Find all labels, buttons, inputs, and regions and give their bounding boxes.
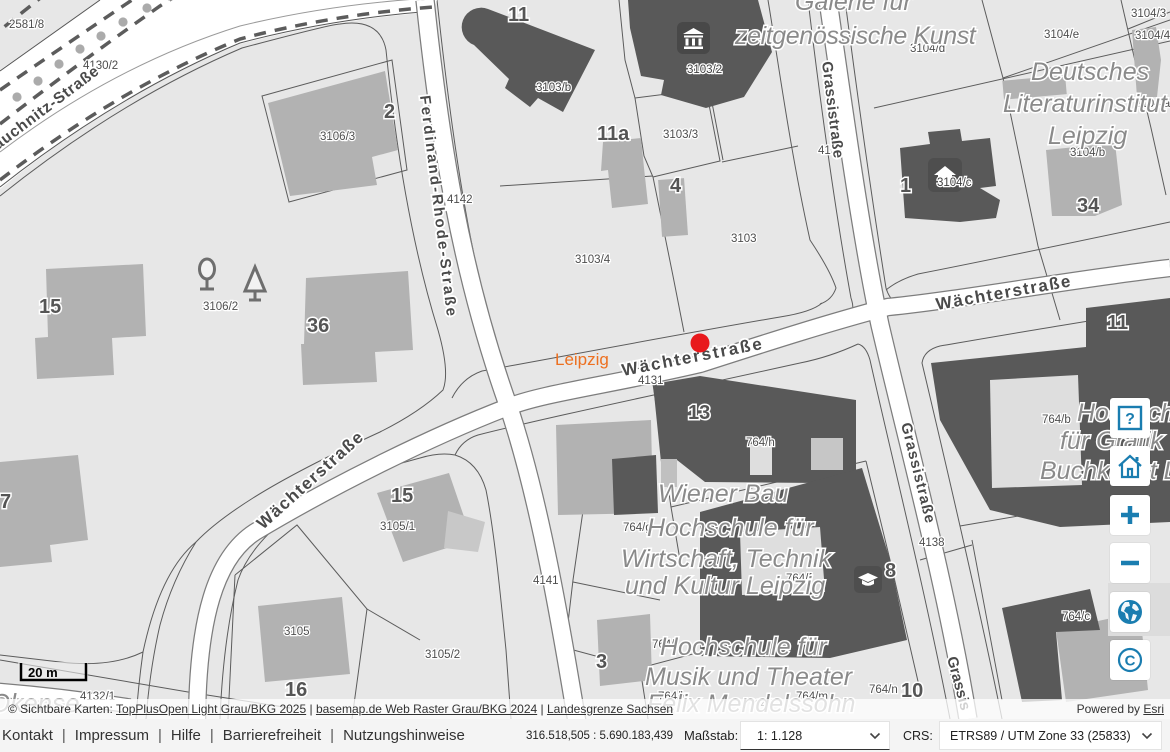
svg-text:8: 8: [885, 560, 896, 582]
svg-text:3104/4: 3104/4: [1135, 30, 1170, 42]
svg-text:4141: 4141: [533, 575, 559, 587]
svg-text:und Kultur Leipzig: und Kultur Leipzig: [625, 572, 825, 600]
svg-text:764/h: 764/h: [746, 437, 775, 449]
svg-text:36: 36: [307, 315, 329, 337]
svg-text:3104/3: 3104/3: [1131, 8, 1166, 20]
svg-text:Leipzig: Leipzig: [555, 350, 609, 369]
svg-text:4138: 4138: [919, 537, 945, 549]
svg-text:Literaturinstitut: Literaturinstitut: [1003, 90, 1168, 118]
svg-text:764/c: 764/c: [1062, 611, 1090, 623]
svg-text:zeitgenössische Kunst: zeitgenössische Kunst: [734, 22, 977, 50]
svg-text:Galerie für: Galerie für: [795, 0, 913, 16]
svg-text:13: 13: [688, 402, 710, 424]
svg-text:?: ?: [1125, 411, 1135, 428]
svg-text:2: 2: [384, 101, 395, 123]
svg-text:1: 1: [900, 175, 911, 197]
svg-text:3104/c: 3104/c: [937, 177, 972, 189]
svg-text:Hochschule für: Hochschule für: [647, 514, 815, 542]
svg-text:11: 11: [508, 4, 529, 26]
svg-text:3106/2: 3106/2: [203, 301, 238, 313]
svg-text:2581/8: 2581/8: [9, 19, 44, 31]
svg-text:Leipzig: Leipzig: [1048, 122, 1127, 150]
svg-text:11a: 11a: [597, 123, 630, 145]
svg-text:4: 4: [670, 175, 682, 197]
svg-text:764/n: 764/n: [869, 684, 898, 696]
svg-text:Buchkunst L: Buchkunst L: [1040, 457, 1170, 485]
svg-text:3105/1: 3105/1: [380, 521, 415, 533]
svg-text:20 m: 20 m: [28, 665, 58, 680]
svg-text:Wirtschaft, Technik: Wirtschaft, Technik: [621, 545, 833, 573]
svg-text:16: 16: [285, 679, 307, 701]
svg-text:Deutsches: Deutsches: [1031, 58, 1149, 86]
svg-text:4142: 4142: [447, 194, 473, 206]
svg-text:3105/2: 3105/2: [425, 649, 460, 661]
svg-text:3104/e: 3104/e: [1044, 29, 1079, 41]
svg-text:15: 15: [39, 296, 61, 318]
svg-text:15: 15: [391, 485, 413, 507]
svg-text:3103: 3103: [731, 233, 757, 245]
svg-text:3106/3: 3106/3: [320, 131, 355, 143]
svg-text:3103/3: 3103/3: [663, 129, 698, 141]
svg-text:Musik und Theater: Musik und Theater: [645, 663, 854, 691]
svg-text:3105: 3105: [284, 626, 310, 638]
svg-text:11: 11: [1107, 312, 1128, 334]
svg-text:3: 3: [596, 651, 607, 673]
svg-text:3103/2: 3103/2: [687, 64, 722, 76]
svg-text:C: C: [1125, 653, 1136, 670]
svg-text:4131: 4131: [638, 375, 664, 387]
svg-text:3103/b: 3103/b: [536, 82, 571, 94]
svg-text:3103/4: 3103/4: [575, 254, 611, 266]
svg-text:764/b: 764/b: [1042, 414, 1071, 426]
svg-text:34: 34: [1077, 195, 1100, 217]
svg-text:Hochschule für: Hochschule für: [660, 633, 828, 661]
svg-text:Wiener Bau: Wiener Bau: [658, 480, 788, 508]
svg-text:7: 7: [0, 491, 11, 513]
